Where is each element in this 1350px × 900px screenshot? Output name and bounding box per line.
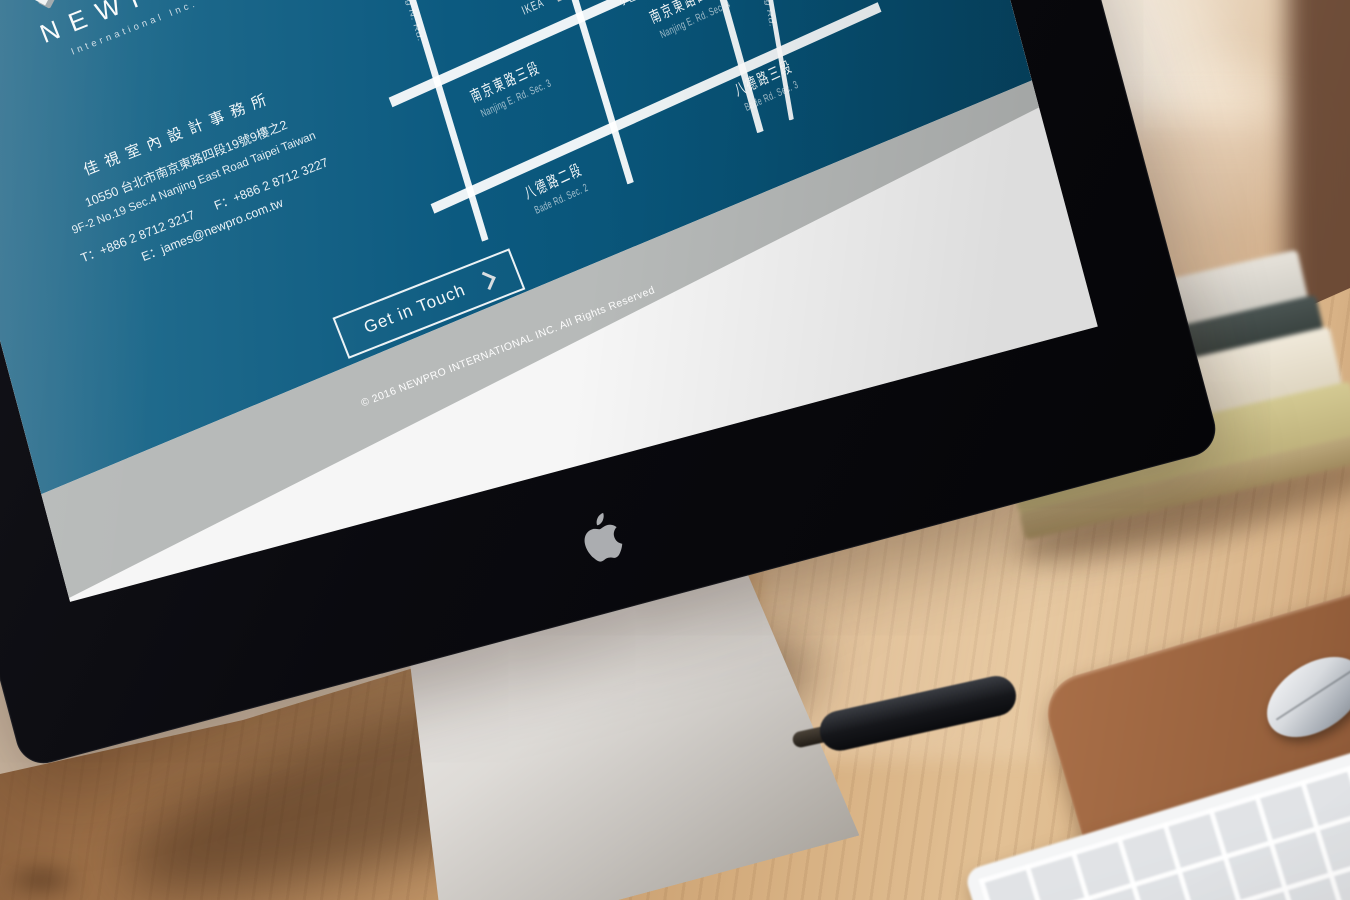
poi-arena-label: 小巨蛋 [617, 0, 647, 9]
poi-ikea-label: IKEA [520, 0, 547, 18]
contact-info: 佳視室內設計事務所 10550 台北市南京東路四段19號9樓之2 9F-2 No… [0, 55, 394, 308]
apple-logo-icon [574, 505, 632, 569]
bokeh-highlight [1130, 40, 1330, 240]
get-in-touch-button[interactable]: Get in Touch [333, 249, 525, 359]
desk-scene: / CONTACT US NEWPRO International Inc. [0, 0, 1350, 900]
cta-label: Get in Touch [361, 280, 468, 338]
poi-ikea-icon [553, 0, 567, 2]
chevron-right-icon [477, 272, 495, 290]
brand-block: NEWPRO International Inc. [0, 0, 274, 89]
